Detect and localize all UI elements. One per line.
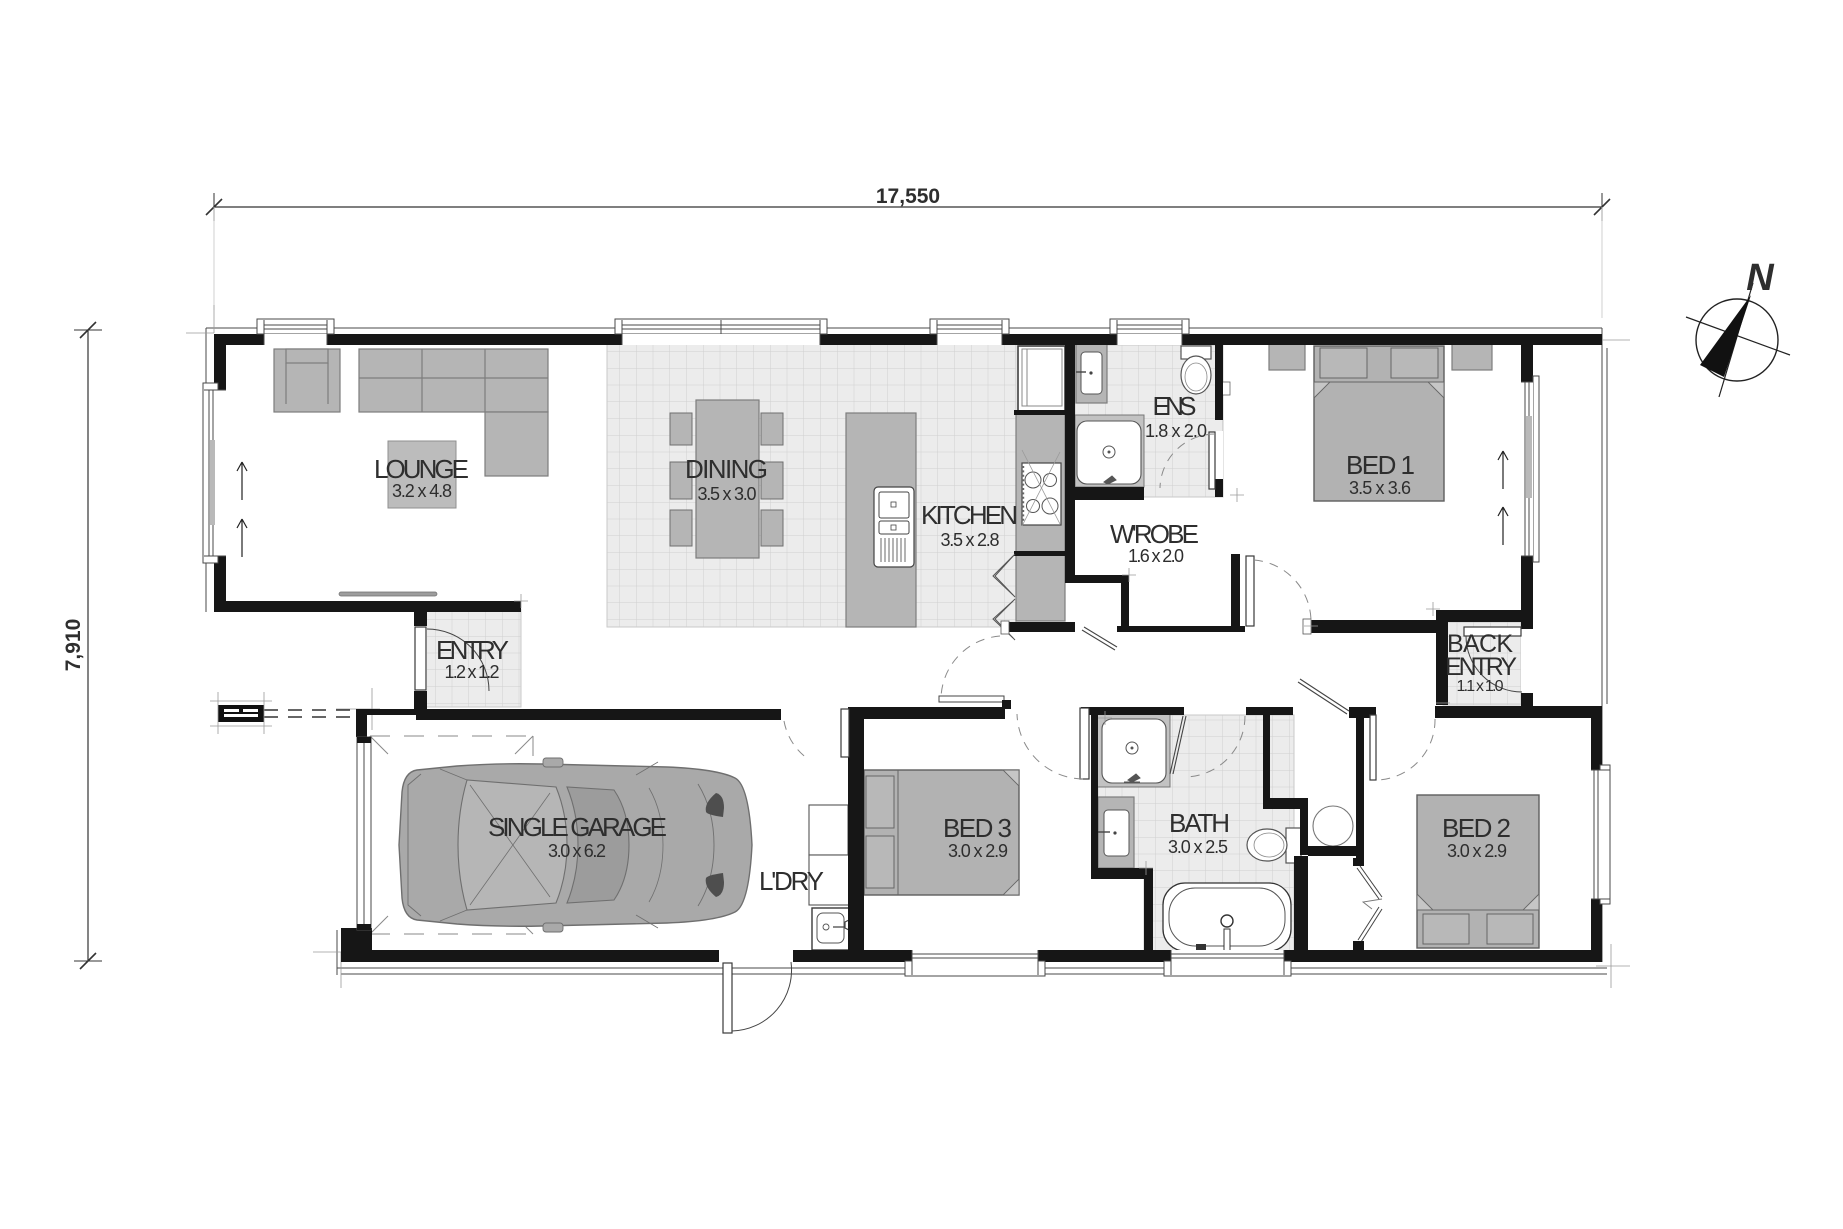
svg-text:17,550: 17,550	[876, 185, 940, 208]
svg-text:BED 2: BED 2	[1442, 813, 1512, 843]
svg-text:3.5 x 2.8: 3.5 x 2.8	[941, 530, 1000, 550]
svg-text:L'DRY: L'DRY	[759, 866, 825, 896]
svg-text:1.1 x 1.0: 1.1 x 1.0	[1457, 678, 1504, 695]
svg-text:SINGLE GARAGE: SINGLE GARAGE	[488, 812, 668, 842]
svg-text:3.0 x 2.5: 3.0 x 2.5	[1168, 837, 1228, 857]
svg-text:1.8 x 2.0: 1.8 x 2.0	[1145, 421, 1207, 441]
svg-text:3.0 x 6.2: 3.0 x 6.2	[548, 841, 606, 861]
svg-text:1.6 x 2.0: 1.6 x 2.0	[1128, 546, 1184, 566]
svg-text:3.0 x 2.9: 3.0 x 2.9	[948, 841, 1008, 861]
svg-text:N: N	[1746, 257, 1775, 299]
svg-text:ENS: ENS	[1153, 391, 1198, 421]
svg-text:BED 3: BED 3	[943, 813, 1013, 843]
svg-text:BED 1: BED 1	[1346, 450, 1416, 480]
svg-text:ENTRY: ENTRY	[436, 635, 510, 665]
svg-text:KITCHEN: KITCHEN	[921, 500, 1019, 530]
svg-text:1.2 x 1.2: 1.2 x 1.2	[445, 662, 500, 682]
svg-text:W'ROBE: W'ROBE	[1110, 519, 1200, 549]
svg-text:3.2 x 4.8: 3.2 x 4.8	[392, 481, 452, 501]
svg-text:3.0 x 2.9: 3.0 x 2.9	[1447, 841, 1507, 861]
svg-text:LOUNGE: LOUNGE	[374, 454, 470, 484]
svg-text:7,910: 7,910	[62, 619, 85, 672]
svg-text:3.5 x 3.0: 3.5 x 3.0	[698, 484, 757, 504]
svg-text:DINING: DINING	[685, 454, 769, 484]
svg-text:BATH: BATH	[1169, 808, 1231, 838]
svg-text:ENTRY: ENTRY	[1445, 653, 1517, 681]
svg-text:3.5 x 3.6: 3.5 x 3.6	[1349, 478, 1411, 498]
